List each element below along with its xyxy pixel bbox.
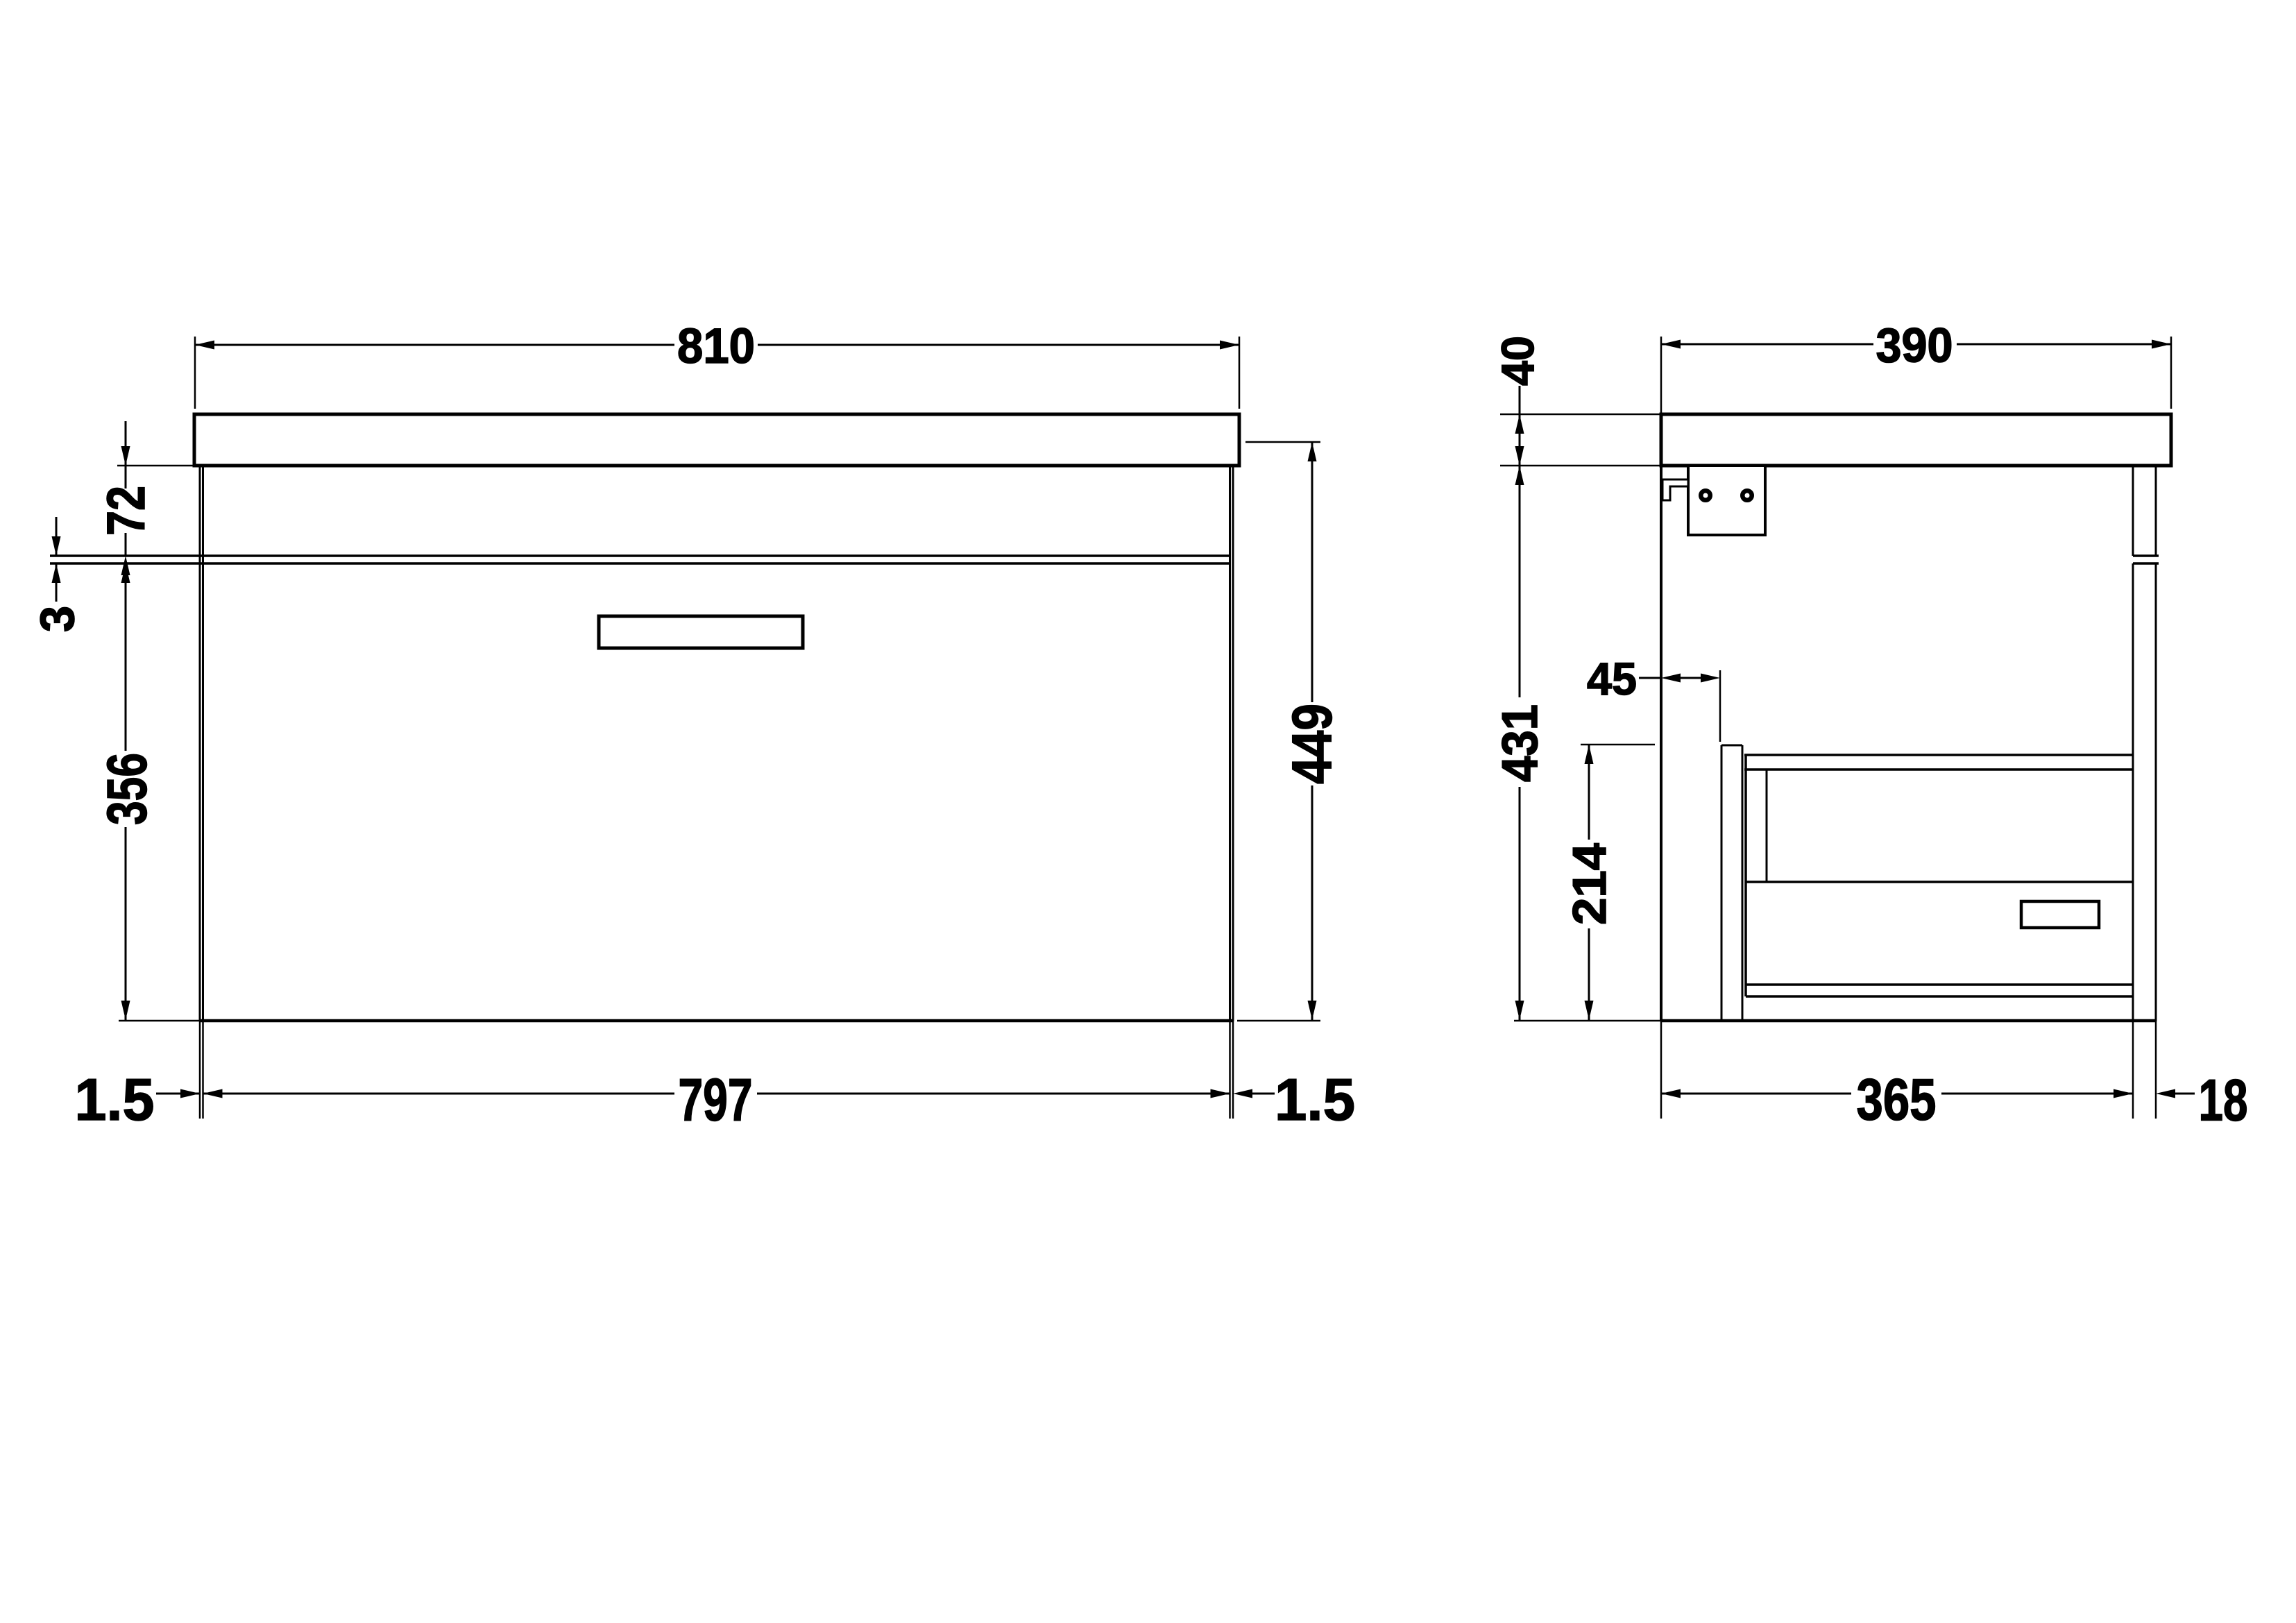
svg-text:45: 45 xyxy=(1587,653,1637,704)
svg-text:72: 72 xyxy=(96,486,156,536)
svg-text:356: 356 xyxy=(96,753,159,825)
svg-text:1.5: 1.5 xyxy=(75,1067,155,1133)
svg-text:810: 810 xyxy=(677,319,755,374)
svg-text:431: 431 xyxy=(1493,704,1548,782)
svg-text:40: 40 xyxy=(1492,336,1543,386)
svg-text:797: 797 xyxy=(679,1067,753,1133)
svg-text:449: 449 xyxy=(1282,704,1344,784)
svg-text:1.5: 1.5 xyxy=(1275,1067,1355,1133)
svg-text:3: 3 xyxy=(31,606,84,632)
svg-text:18: 18 xyxy=(2199,1068,2248,1133)
svg-text:214: 214 xyxy=(1563,843,1616,925)
svg-text:390: 390 xyxy=(1876,318,1953,373)
svg-text:365: 365 xyxy=(1857,1067,1937,1132)
